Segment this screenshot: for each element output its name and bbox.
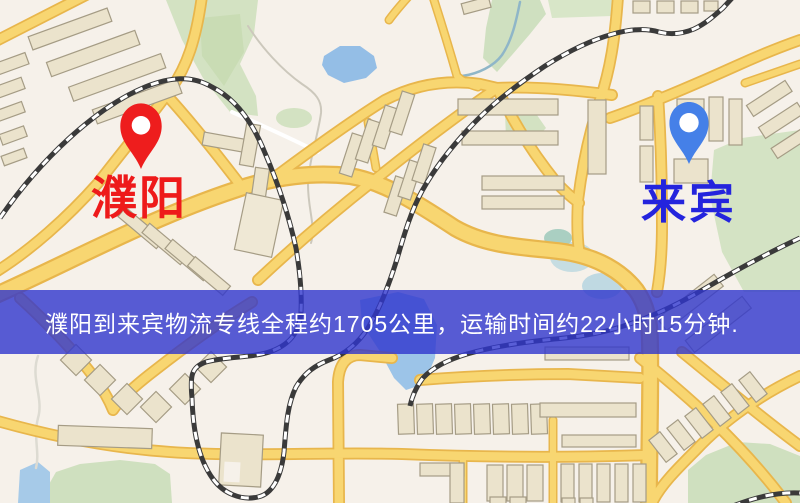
route-info-text: 濮阳到来宾物流专线全程约1705公里，运输时间约22小时15分钟. bbox=[45, 305, 739, 339]
origin-label: 濮阳 bbox=[91, 176, 187, 222]
map-canvas[interactable]: 濮阳 来宾 濮阳到来宾物流专线全程约1705公里，运输时间约22小时15分钟. bbox=[0, 0, 800, 503]
map-image bbox=[0, 0, 800, 503]
pin-hole bbox=[679, 113, 698, 132]
pin-hole bbox=[132, 116, 151, 135]
destination-label: 来宾 bbox=[641, 181, 737, 226]
route-info-banner: 濮阳到来宾物流专线全程约1705公里，运输时间约22小时15分钟. bbox=[0, 290, 800, 354]
